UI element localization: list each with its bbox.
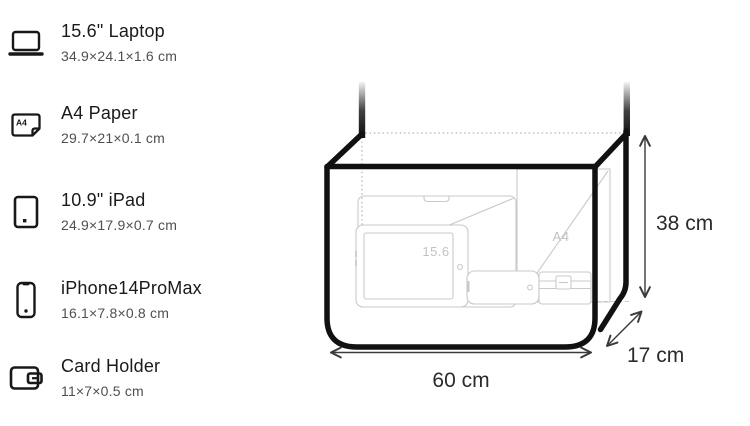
a4-paper-icon: A4 [6, 110, 46, 140]
iphone-outline [467, 271, 539, 304]
ipad-outline [356, 225, 468, 307]
item-dimensions: 29.7×21×0.1 cm [61, 130, 165, 147]
legend-item-a4-paper: A4 A4 Paper 29.7×21×0.1 cm [6, 102, 165, 147]
legend-item-laptop: 15.6" Laptop 34.9×24.1×1.6 cm [6, 20, 177, 65]
item-name: 10.9" iPad [61, 189, 177, 211]
laptop-icon [6, 28, 46, 58]
items-legend: 15.6" Laptop 34.9×24.1×1.6 cm A4 A4 Pape… [0, 0, 290, 426]
iphone-icon [6, 280, 46, 320]
legend-item-iphone: iPhone14ProMax 16.1×7.8×0.8 cm [6, 277, 202, 322]
item-dimensions: 11×7×0.5 cm [61, 383, 160, 400]
bag-contents: 15.6 A4 [356, 169, 630, 307]
item-dimensions: 34.9×24.1×1.6 cm [61, 48, 177, 65]
strap-left [359, 82, 365, 138]
height-label: 38 cm [656, 212, 713, 235]
laptop-size-label: 15.6 [422, 244, 449, 259]
card-holder-outline [539, 272, 591, 304]
ipad-icon [6, 194, 46, 230]
bag-diagram: 15.6 A4 60 cm 38 cm [290, 0, 750, 426]
depth-arrow [607, 312, 642, 347]
item-dimensions: 24.9×17.9×0.7 cm [61, 217, 177, 234]
card-holder-icon [6, 363, 46, 393]
item-name: iPhone14ProMax [61, 277, 202, 299]
a4-icon-label: A4 [16, 117, 27, 127]
item-name: 15.6" Laptop [61, 20, 177, 42]
legend-item-card-holder: Card Holder 11×7×0.5 cm [6, 355, 160, 400]
item-dimensions: 16.1×7.8×0.8 cm [61, 305, 202, 322]
strap-right [624, 82, 630, 136]
legend-item-ipad: 10.9" iPad 24.9×17.9×0.7 cm [6, 189, 177, 234]
bag-capacity-infographic: 15.6" Laptop 34.9×24.1×1.6 cm A4 A4 Pape… [0, 0, 750, 426]
a4-size-label: A4 [553, 229, 570, 244]
depth-label: 17 cm [627, 344, 684, 367]
width-label: 60 cm [432, 369, 489, 392]
item-name: A4 Paper [61, 102, 165, 124]
item-name: Card Holder [61, 355, 160, 377]
